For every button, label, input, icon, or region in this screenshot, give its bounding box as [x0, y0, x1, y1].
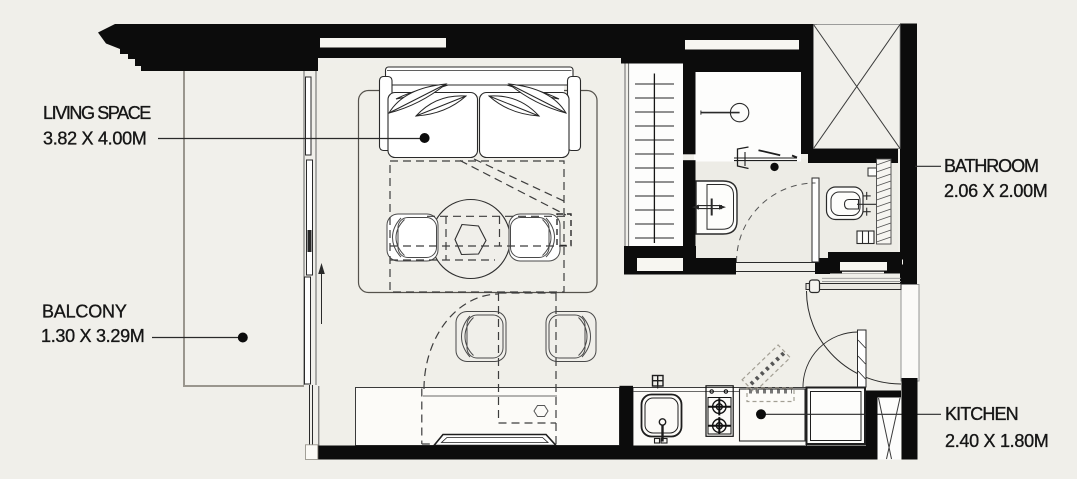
- svg-text:3.82 X 4.00M: 3.82 X 4.00M: [43, 129, 146, 149]
- svg-text:BALCONY: BALCONY: [42, 302, 127, 322]
- svg-text:LIVING SPACE: LIVING SPACE: [43, 103, 151, 123]
- svg-text:2.06 X 2.00M: 2.06 X 2.00M: [944, 181, 1047, 201]
- svg-text:1.30 X 3.29M: 1.30 X 3.29M: [41, 326, 144, 346]
- svg-text:2.40 X 1.80M: 2.40 X 1.80M: [945, 431, 1048, 451]
- svg-text:KITCHEN: KITCHEN: [945, 404, 1018, 424]
- svg-text:BATHROOM: BATHROOM: [944, 156, 1038, 176]
